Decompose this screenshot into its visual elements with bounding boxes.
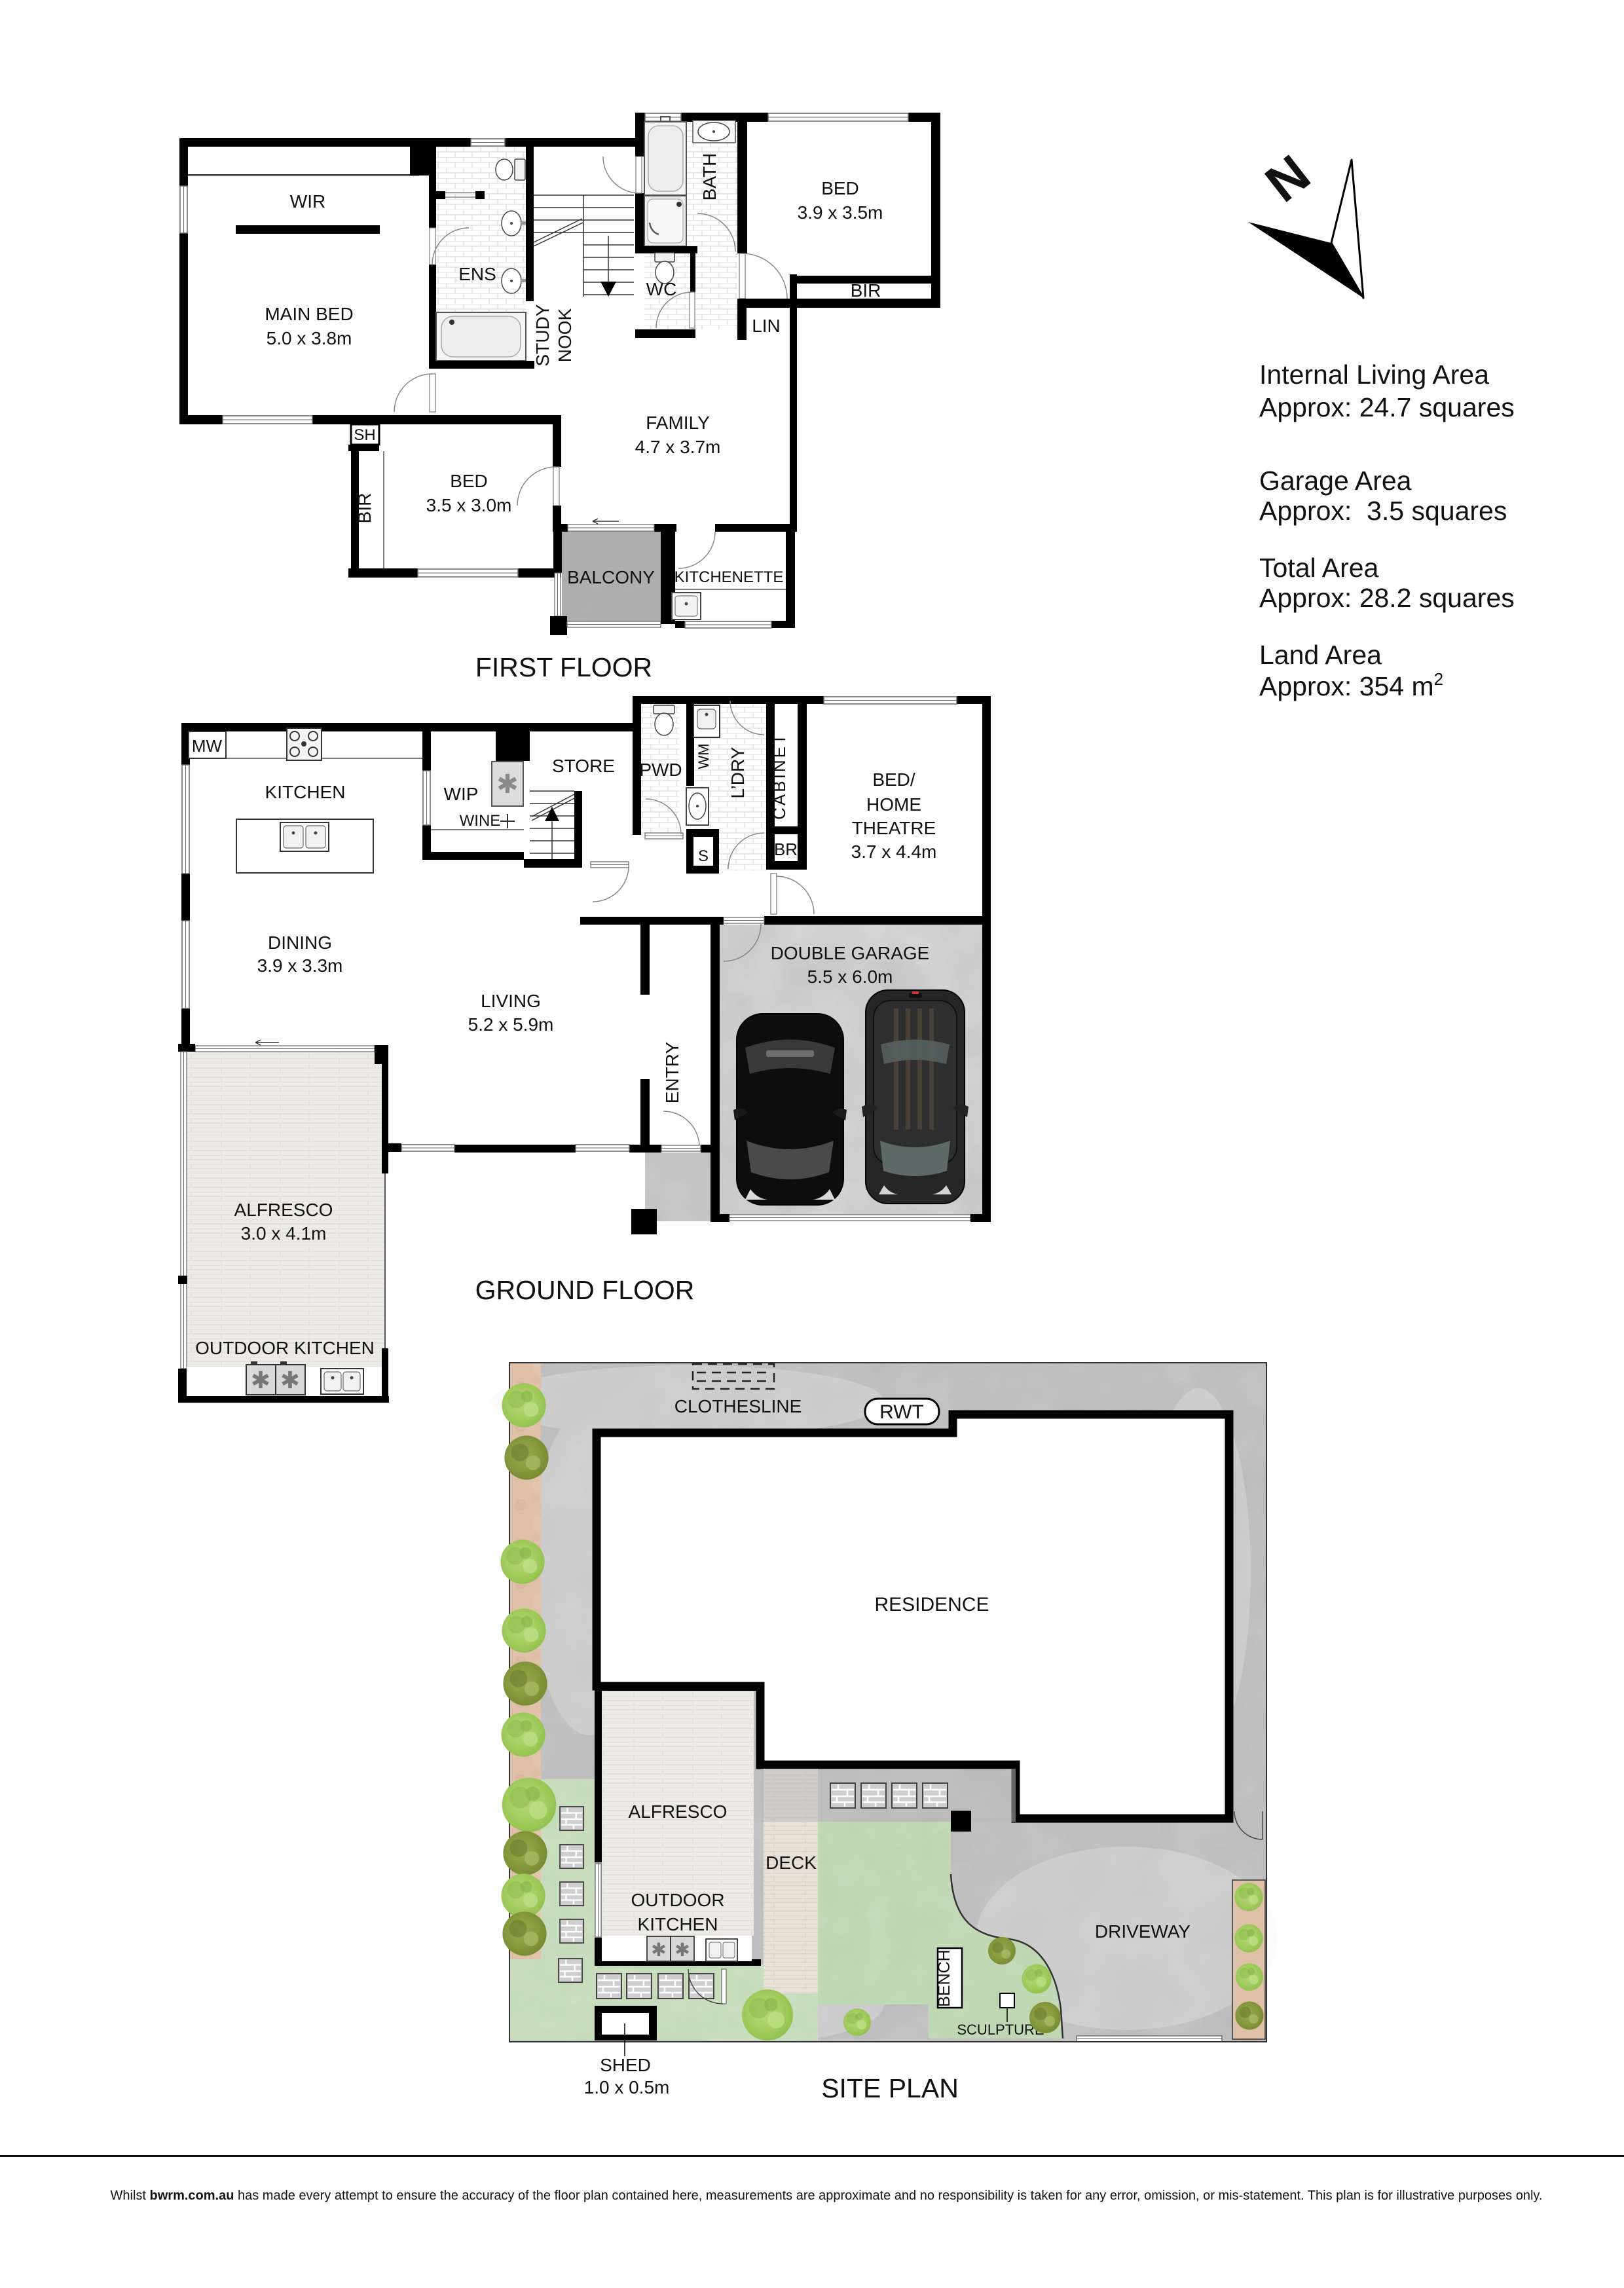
svg-text:Approx: 3.5 squares: Approx: 3.5 squares	[1259, 496, 1507, 526]
svg-text:5.2 x 5.9m: 5.2 x 5.9m	[468, 1014, 554, 1035]
svg-text:✱: ✱	[674, 1940, 690, 1960]
svg-text:✱: ✱	[651, 1940, 666, 1960]
svg-text:DOUBLE GARAGE: DOUBLE GARAGE	[771, 943, 930, 963]
svg-text:WIR: WIR	[290, 191, 325, 212]
svg-text:DINING: DINING	[268, 932, 332, 953]
svg-text:1.0 x 0.5m: 1.0 x 0.5m	[584, 2077, 670, 2097]
svg-text:WC: WC	[646, 279, 677, 299]
svg-text:KITCHEN: KITCHEN	[638, 1914, 718, 1934]
svg-text:Garage Area: Garage Area	[1259, 466, 1412, 496]
svg-text:MW: MW	[192, 736, 223, 756]
svg-text:FIRST FLOOR: FIRST FLOOR	[475, 652, 652, 682]
svg-text:WINE: WINE	[460, 812, 501, 830]
svg-text:SH: SH	[354, 426, 375, 444]
svg-text:ALFRESCO: ALFRESCO	[234, 1200, 333, 1220]
svg-text:5.0 x 3.8m: 5.0 x 3.8m	[267, 328, 352, 348]
svg-text:MAIN BED: MAIN BED	[265, 304, 353, 324]
svg-text:SHED: SHED	[600, 2055, 651, 2075]
svg-text:KITCHENETTE: KITCHENETTE	[674, 568, 784, 586]
svg-text:SITE PLAN: SITE PLAN	[821, 2073, 959, 2103]
svg-text:Approx: 28.2 squares: Approx: 28.2 squares	[1259, 583, 1515, 613]
svg-text:4.7 x 3.7m: 4.7 x 3.7m	[635, 437, 721, 457]
svg-text:BR: BR	[774, 840, 798, 859]
svg-text:BALCONY: BALCONY	[567, 567, 655, 587]
svg-text:STORE: STORE	[552, 756, 615, 776]
svg-text:STUDY: STUDY	[532, 304, 553, 366]
svg-text:3.7 x 4.4m: 3.7 x 4.4m	[851, 841, 937, 862]
svg-text:DRIVEWAY: DRIVEWAY	[1095, 1921, 1191, 1942]
svg-text:ALFRESCO: ALFRESCO	[629, 1801, 728, 1822]
svg-text:Internal Living Area: Internal Living Area	[1259, 360, 1489, 390]
svg-text:L’DRY: L’DRY	[728, 747, 748, 798]
svg-text:RWT: RWT	[879, 1401, 924, 1423]
svg-text:DECK: DECK	[766, 1853, 817, 1873]
svg-text:3.9 x 3.5m: 3.9 x 3.5m	[798, 202, 883, 223]
svg-text:ENS: ENS	[458, 264, 496, 284]
svg-text:BED: BED	[821, 178, 859, 198]
svg-text:WM: WM	[695, 743, 712, 769]
svg-text:LIN: LIN	[752, 316, 781, 336]
svg-text:Land Area: Land Area	[1259, 640, 1382, 670]
svg-text:✱: ✱	[496, 770, 519, 799]
svg-text:BIR: BIR	[851, 280, 881, 301]
svg-text:PWD: PWD	[639, 760, 682, 780]
svg-text:3.0 x 4.1m: 3.0 x 4.1m	[241, 1223, 327, 1244]
svg-text:Approx: 24.7 squares: Approx: 24.7 squares	[1259, 392, 1515, 422]
svg-text:Total Area: Total Area	[1259, 553, 1379, 583]
svg-text:✱: ✱	[280, 1367, 300, 1393]
svg-text:3.5 x 3.0m: 3.5 x 3.0m	[426, 495, 512, 515]
svg-text:OUTDOOR: OUTDOOR	[631, 1890, 724, 1910]
svg-text:BIR: BIR	[354, 493, 375, 524]
svg-text:BED: BED	[450, 471, 488, 491]
svg-text:3.9 x 3.3m: 3.9 x 3.3m	[257, 955, 343, 976]
svg-text:RESIDENCE: RESIDENCE	[874, 1594, 989, 1615]
svg-text:BENCH: BENCH	[935, 1949, 953, 2007]
svg-text:Whilst bwrm.com.au has made ev: Whilst bwrm.com.au has made every attemp…	[111, 2188, 1543, 2203]
svg-text:OUTDOOR KITCHEN: OUTDOOR KITCHEN	[195, 1338, 375, 1358]
svg-text:CABINET: CABINET	[769, 732, 789, 820]
svg-text:NOOK: NOOK	[555, 308, 575, 362]
svg-text:ENTRY: ENTRY	[662, 1041, 682, 1103]
svg-text:FAMILY: FAMILY	[646, 413, 710, 433]
svg-text:CLOTHESLINE: CLOTHESLINE	[674, 1396, 802, 1416]
svg-text:✱: ✱	[251, 1367, 270, 1393]
svg-text:BED/: BED/	[872, 769, 915, 790]
svg-text:WIP: WIP	[444, 784, 479, 804]
svg-text:GROUND FLOOR: GROUND FLOOR	[475, 1275, 695, 1305]
svg-text:Approx: 354 m2: Approx: 354 m2	[1259, 669, 1443, 701]
svg-text:S: S	[698, 847, 709, 865]
svg-text:BATH: BATH	[699, 153, 720, 201]
svg-text:LIVING: LIVING	[481, 991, 541, 1011]
svg-text:5.5 x 6.0m: 5.5 x 6.0m	[807, 967, 893, 987]
svg-text:KITCHEN: KITCHEN	[265, 782, 346, 802]
svg-text:HOME: HOME	[866, 794, 921, 815]
svg-text:THEATRE: THEATRE	[852, 818, 936, 838]
